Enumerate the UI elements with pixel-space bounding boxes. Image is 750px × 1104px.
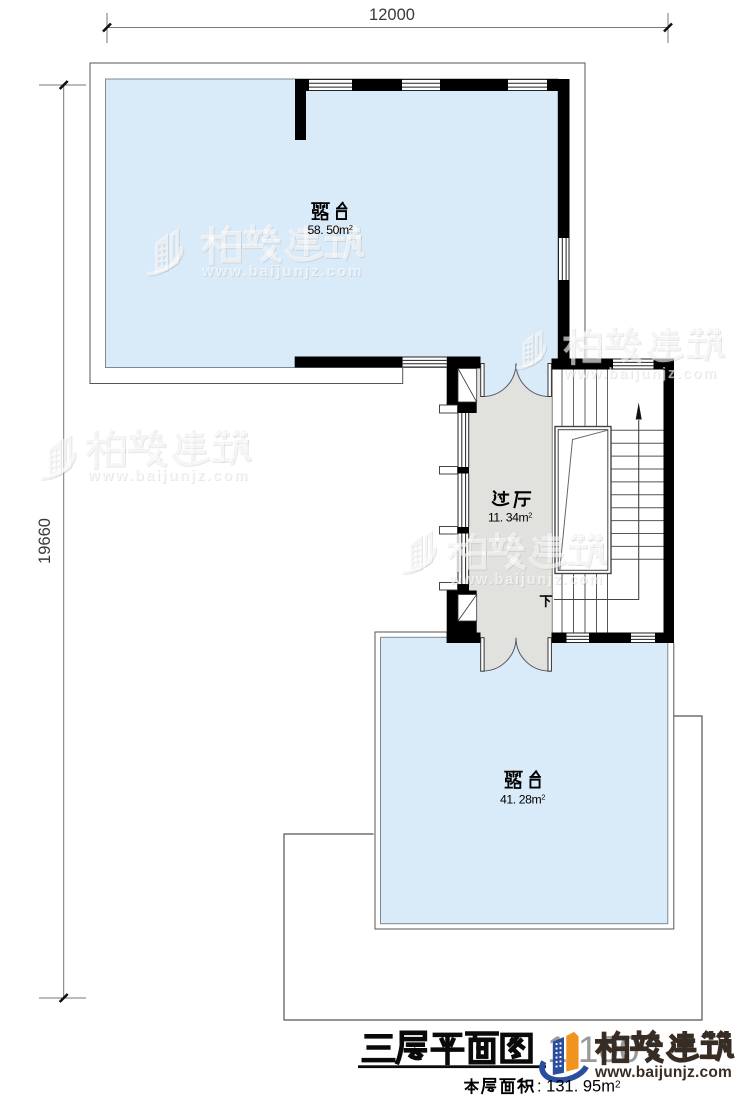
svg-text:www.baijunjz.com: www.baijunjz.com <box>563 366 718 382</box>
svg-text:58. 50m2: 58. 50m2 <box>307 223 352 237</box>
svg-text:: 131. 95m2: : 131. 95m2 <box>537 1078 621 1096</box>
svg-text:41. 28m2: 41. 28m2 <box>500 793 545 807</box>
svg-text:www.baijunjz.com: www.baijunjz.com <box>449 572 604 588</box>
svg-text:19660: 19660 <box>36 518 54 564</box>
svg-text:www.baijunjz.com: www.baijunjz.com <box>87 467 249 484</box>
svg-text:11. 34m2: 11. 34m2 <box>488 511 532 525</box>
svg-text:12000: 12000 <box>369 6 415 24</box>
svg-text:www.baijunjz.com: www.baijunjz.com <box>201 263 363 280</box>
